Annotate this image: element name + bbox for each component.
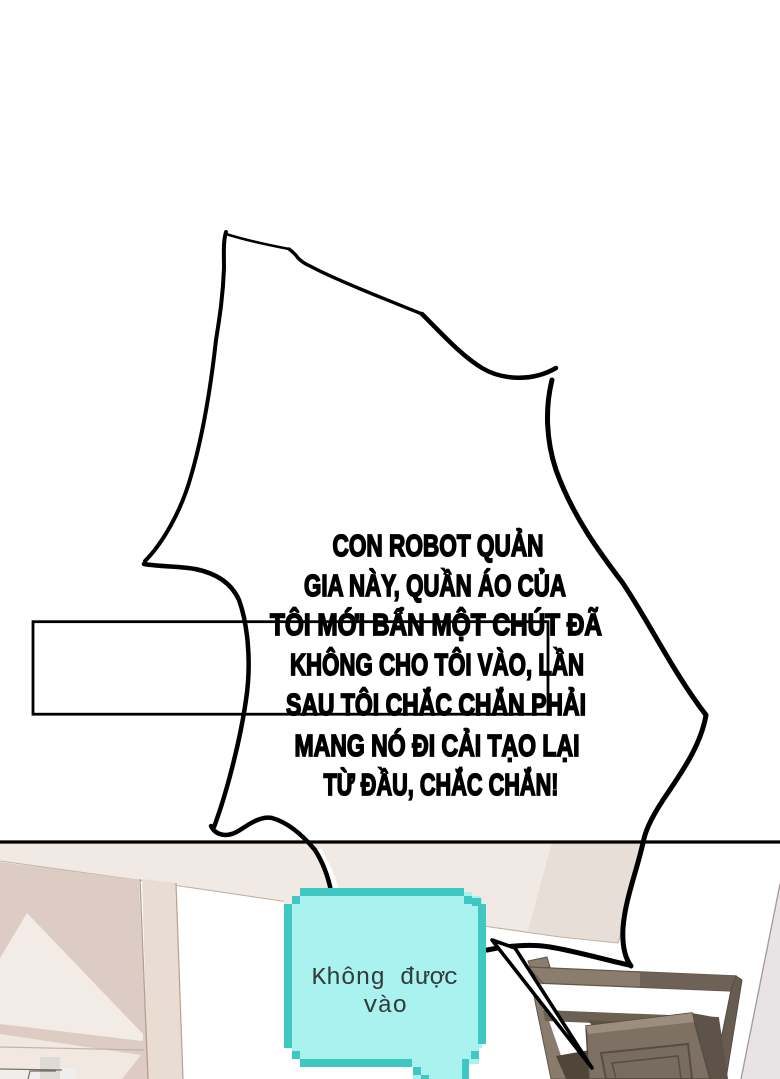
svg-text:SAU TÔI CHẮC CHẮN PHẢI: SAU TÔI CHẮC CHẮN PHẢI <box>286 686 586 722</box>
svg-text:CON ROBOT QUẢN: CON ROBOT QUẢN <box>333 528 544 563</box>
svg-text:TÔI MỚI BẨN MỘT CHÚT ĐÃ: TÔI MỚI BẨN MỘT CHÚT ĐÃ <box>270 606 602 642</box>
svg-text:Không được: Không được <box>311 965 458 992</box>
svg-text:TỪ ĐẦU, CHẮC CHẮN!: TỪ ĐẦU, CHẮC CHẮN! <box>324 766 559 802</box>
svg-text:KHÔNG CHO TÔI VÀO, LẦN: KHÔNG CHO TÔI VÀO, LẦN <box>290 646 584 682</box>
svg-text:vào: vào <box>363 993 407 1020</box>
svg-text:MANG NÓ ĐI CẢI TẠO LẠI: MANG NÓ ĐI CẢI TẠO LẠI <box>295 727 580 763</box>
svg-text:GIA NÀY, QUẦN ÁO CỦA: GIA NÀY, QUẦN ÁO CỦA <box>304 567 566 603</box>
